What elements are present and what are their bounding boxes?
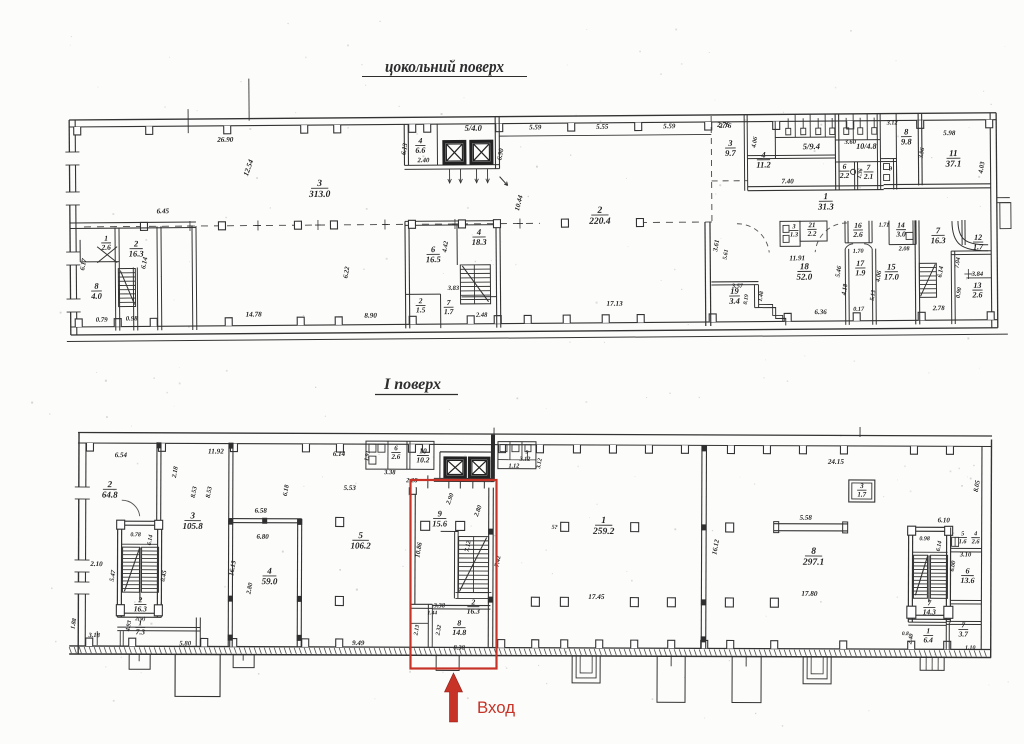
svg-text:17.0: 17.0 <box>884 272 900 282</box>
svg-text:5/9.4: 5/9.4 <box>803 141 820 151</box>
svg-text:4: 4 <box>417 136 422 145</box>
svg-text:2: 2 <box>418 296 423 305</box>
svg-text:6.58: 6.58 <box>255 507 268 515</box>
svg-text:1.70: 1.70 <box>853 248 864 255</box>
svg-text:4: 4 <box>266 566 272 576</box>
svg-text:8.38: 8.38 <box>454 644 466 651</box>
svg-text:2.40: 2.40 <box>416 157 430 164</box>
svg-text:21: 21 <box>807 221 815 229</box>
svg-text:3.57: 3.57 <box>731 283 744 290</box>
svg-text:І поверх: І поверх <box>383 376 441 393</box>
svg-text:2.1: 2.1 <box>863 172 873 181</box>
svg-text:3: 3 <box>727 138 733 148</box>
svg-text:15.6: 15.6 <box>432 518 448 528</box>
svg-text:6.6: 6.6 <box>415 146 425 155</box>
svg-text:2.6: 2.6 <box>100 243 111 252</box>
svg-text:7.3: 7.3 <box>136 627 146 636</box>
svg-text:5: 5 <box>358 530 363 540</box>
svg-text:4: 4 <box>476 227 481 237</box>
svg-text:0.78: 0.78 <box>130 532 141 538</box>
svg-text:1: 1 <box>823 191 828 201</box>
svg-text:14: 14 <box>897 220 905 229</box>
svg-text:10.2: 10.2 <box>416 455 429 464</box>
svg-text:2.76: 2.76 <box>718 122 732 130</box>
svg-text:7: 7 <box>961 620 965 629</box>
svg-text:5.59: 5.59 <box>663 122 676 130</box>
svg-text:1.9: 1.9 <box>855 268 865 277</box>
svg-text:24.15: 24.15 <box>827 458 845 466</box>
svg-text:0.17: 0.17 <box>853 306 865 313</box>
svg-text:2.10: 2.10 <box>89 560 103 568</box>
svg-text:3.10: 3.10 <box>959 551 972 558</box>
svg-text:5.53: 5.53 <box>344 484 357 492</box>
svg-text:9.49: 9.49 <box>352 639 365 647</box>
svg-text:3.84: 3.84 <box>971 271 984 278</box>
svg-text:2: 2 <box>137 595 142 604</box>
svg-text:220.4: 220.4 <box>588 217 611 227</box>
svg-text:7: 7 <box>927 598 931 607</box>
svg-text:16: 16 <box>854 221 862 230</box>
svg-text:3.0: 3.0 <box>895 230 906 239</box>
svg-text:6.54: 6.54 <box>115 451 128 459</box>
svg-text:14.8: 14.8 <box>452 628 466 637</box>
svg-text:2.6: 2.6 <box>852 230 863 239</box>
svg-text:3: 3 <box>316 179 322 189</box>
svg-text:2.78: 2.78 <box>932 305 946 312</box>
svg-text:14.78: 14.78 <box>246 310 263 318</box>
svg-text:297.1: 297.1 <box>802 558 824 568</box>
svg-text:0.8: 0.8 <box>902 631 909 637</box>
svg-text:3.18: 3.18 <box>88 632 101 639</box>
svg-text:16.5: 16.5 <box>426 254 442 264</box>
svg-text:6: 6 <box>965 566 969 575</box>
svg-text:7: 7 <box>867 163 871 172</box>
svg-text:2(м): 2(м) <box>134 615 145 622</box>
svg-text:17.45: 17.45 <box>588 593 605 601</box>
svg-text:3.83: 3.83 <box>447 285 460 292</box>
svg-text:1: 1 <box>601 516 606 526</box>
svg-text:3: 3 <box>189 510 195 520</box>
svg-text:2.48: 2.48 <box>475 312 488 319</box>
svg-text:11.92: 11.92 <box>208 447 224 455</box>
svg-text:8.90: 8.90 <box>364 312 377 320</box>
svg-text:1.44: 1.44 <box>428 610 438 616</box>
svg-text:2.2: 2.2 <box>807 230 817 238</box>
svg-text:2: 2 <box>107 479 113 489</box>
svg-text:106.2: 106.2 <box>350 541 371 551</box>
svg-text:5: 5 <box>961 530 964 537</box>
svg-text:10: 10 <box>419 446 427 455</box>
svg-text:2.6: 2.6 <box>971 538 981 545</box>
svg-text:16.3: 16.3 <box>931 235 947 245</box>
svg-text:16.3: 16.3 <box>134 604 147 613</box>
svg-text:0.98: 0.98 <box>126 315 139 322</box>
svg-text:3.4: 3.4 <box>728 296 740 306</box>
svg-text:1.3: 1.3 <box>790 231 799 238</box>
svg-text:5.59: 5.59 <box>529 123 542 131</box>
svg-text:0.98: 0.98 <box>919 536 930 542</box>
svg-text:8: 8 <box>811 547 816 557</box>
svg-text:Вход: Вход <box>477 698 515 717</box>
svg-text:1: 1 <box>104 234 108 243</box>
svg-text:14.3: 14.3 <box>923 607 936 616</box>
svg-text:4.0: 4.0 <box>90 291 102 301</box>
svg-text:6.10: 6.10 <box>938 516 951 524</box>
svg-text:0.79: 0.79 <box>96 317 109 324</box>
svg-text:6.4: 6.4 <box>924 635 934 644</box>
svg-text:9.7: 9.7 <box>725 148 736 158</box>
svg-text:37.1: 37.1 <box>945 158 962 168</box>
svg-text:2: 2 <box>133 238 139 248</box>
svg-text:1.5: 1.5 <box>416 305 426 314</box>
svg-text:цокольний поверх: цокольний поверх <box>385 57 504 76</box>
svg-text:5.98: 5.98 <box>943 129 956 137</box>
svg-text:9.8: 9.8 <box>901 136 912 146</box>
svg-text:13.6: 13.6 <box>960 576 974 585</box>
svg-text:10/4.8: 10/4.8 <box>856 142 876 151</box>
svg-text:6.14: 6.14 <box>333 450 346 458</box>
svg-text:2.6: 2.6 <box>972 290 983 299</box>
svg-text:3.12: 3.12 <box>519 456 531 463</box>
svg-text:3: 3 <box>859 482 864 490</box>
svg-text:1.6: 1.6 <box>959 538 968 545</box>
svg-text:5?: 5? <box>552 525 558 531</box>
svg-text:17.13: 17.13 <box>606 300 623 308</box>
svg-text:1.71: 1.71 <box>879 222 890 229</box>
svg-text:105.8: 105.8 <box>183 521 204 531</box>
svg-text:12: 12 <box>974 233 982 242</box>
svg-text:6: 6 <box>394 444 398 452</box>
svg-text:5.55: 5.55 <box>596 123 609 131</box>
svg-text:15: 15 <box>887 262 896 272</box>
svg-text:1.7: 1.7 <box>973 242 984 251</box>
svg-text:31.3: 31.3 <box>817 201 834 211</box>
svg-text:52.0: 52.0 <box>796 272 812 282</box>
svg-text:6.36: 6.36 <box>815 308 828 316</box>
svg-text:1.10: 1.10 <box>965 645 976 651</box>
svg-text:2.08: 2.08 <box>898 245 910 252</box>
svg-text:18.3: 18.3 <box>472 237 488 247</box>
svg-text:6.45: 6.45 <box>157 207 170 215</box>
svg-text:17.80: 17.80 <box>801 590 818 598</box>
svg-text:6.80: 6.80 <box>256 533 269 541</box>
svg-text:13: 13 <box>973 281 981 290</box>
svg-text:3.60: 3.60 <box>844 139 857 146</box>
svg-text:2.2: 2.2 <box>839 171 850 180</box>
svg-text:16.3: 16.3 <box>467 607 480 616</box>
svg-text:11: 11 <box>949 148 958 158</box>
svg-text:1.7: 1.7 <box>444 307 454 316</box>
svg-text:7.40: 7.40 <box>781 177 794 185</box>
svg-text:3.12: 3.12 <box>886 119 898 126</box>
svg-text:313.0: 313.0 <box>308 190 331 200</box>
svg-text:3.7: 3.7 <box>958 629 969 638</box>
svg-text:7: 7 <box>447 298 451 307</box>
svg-text:5.58: 5.58 <box>800 514 813 522</box>
svg-text:6: 6 <box>843 162 847 171</box>
svg-text:17: 17 <box>856 259 865 268</box>
svg-text:8: 8 <box>457 618 461 627</box>
svg-text:64.8: 64.8 <box>102 490 118 500</box>
svg-text:4: 4 <box>973 530 977 537</box>
svg-text:1.7: 1.7 <box>857 491 866 499</box>
svg-text:3.38: 3.38 <box>383 469 396 476</box>
svg-text:5/4.0: 5/4.0 <box>465 123 483 133</box>
svg-text:1.12: 1.12 <box>508 463 519 470</box>
svg-text:5.80: 5.80 <box>179 640 192 647</box>
svg-text:59.0: 59.0 <box>262 576 278 586</box>
svg-text:1: 1 <box>926 626 930 635</box>
svg-text:26.90: 26.90 <box>216 136 234 144</box>
svg-text:2: 2 <box>596 206 602 216</box>
svg-text:11.2: 11.2 <box>756 160 771 170</box>
svg-text:18: 18 <box>800 261 810 271</box>
svg-text:259.2: 259.2 <box>592 527 615 537</box>
svg-text:2.6: 2.6 <box>391 453 401 461</box>
